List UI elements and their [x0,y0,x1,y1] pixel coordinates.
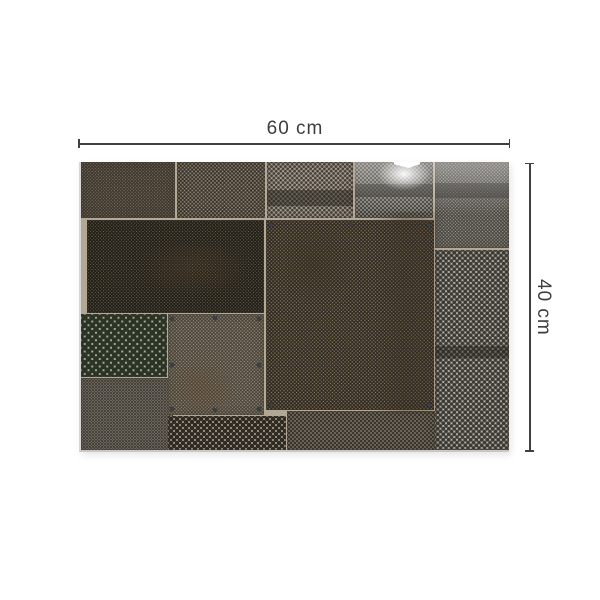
panel-strip-coarse [168,416,286,450]
panel-bottom-left [81,378,173,450]
panel-polka-right [435,250,509,450]
panel-top-center [267,162,353,218]
product-photo-perforated-metal-panels [79,162,509,452]
width-line-left-tick [78,139,80,148]
panel-top-center-dark-band [267,190,353,206]
height-dimension-line [529,163,531,451]
height-line-top-tick [525,163,534,165]
panel-top-left [81,162,175,218]
panel-polka-right-dark-band [435,346,509,358]
rivet-screw [170,407,174,411]
panel-dense-left [87,220,264,313]
metal-panel-collage [81,162,509,450]
rivet-screw [213,408,217,412]
rivet-screw [170,363,174,367]
rivet-screw [269,403,273,407]
panel-top-right-dark-band [355,184,433,197]
rivet-screw [257,407,261,411]
width-line-right-tick [509,139,511,148]
rivet-screw [257,317,261,321]
width-dimension-label: 60 cm [79,118,511,140]
panel-top-right [355,162,433,218]
panel-strip-fine [287,411,435,450]
product-dimension-diagram: 60 cm 40 cm [0,0,600,600]
rivet-screw [213,316,217,320]
height-dimension-label: 40 cm [532,163,554,451]
width-dimension-line [78,143,510,145]
panel-square-rivets [168,314,264,415]
rivet-screw [170,317,174,321]
panel-far-right-top-dark-band [435,183,509,198]
rivet-screw [257,363,261,367]
rivet-screw [269,223,273,227]
panel-central-large [266,220,434,410]
rivet-screw [349,222,353,226]
panel-pegboard [81,314,167,377]
rivet-screw [427,223,431,227]
height-line-bottom-tick [525,450,534,452]
panel-far-right-top [435,162,509,248]
panel-top-mid [177,162,265,218]
rivet-screw [427,403,431,407]
